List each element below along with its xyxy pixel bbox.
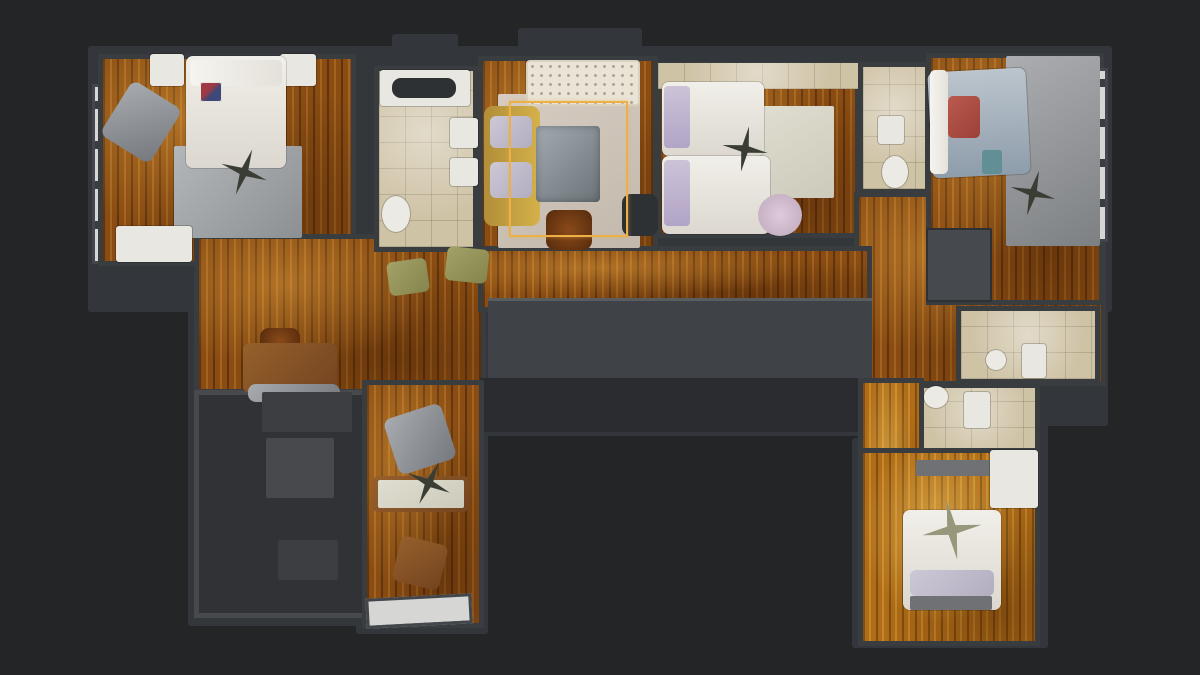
tufted-headboard (526, 60, 640, 106)
stool-teal (982, 150, 1002, 174)
room-core-shadow (480, 378, 872, 432)
sink-main-2 (450, 158, 478, 186)
patch-bright-darkroom (266, 438, 334, 498)
bathtub-basin (392, 78, 456, 98)
selected-room-highlight[interactable] (509, 101, 628, 237)
toilet-bath-upper (1022, 344, 1046, 378)
bench-bottom (910, 596, 992, 610)
wall-slab-vent-1 (392, 34, 458, 62)
office-ledge (365, 593, 472, 629)
sink-ensuite (878, 116, 904, 144)
pillows-bottom (910, 570, 994, 596)
pillow-twin-1 (664, 86, 690, 148)
pillow-twin-2 (664, 160, 690, 226)
cushions-red (948, 96, 980, 138)
toilet-ensuite (882, 156, 908, 188)
room-living-dining-left[interactable] (194, 234, 486, 394)
dining-chair-1 (386, 257, 430, 296)
sink-bath-upper (986, 350, 1006, 370)
toilet-main (382, 196, 410, 232)
room-stair-core[interactable] (488, 298, 872, 380)
sink-main-1 (450, 118, 478, 148)
nightstand-left (150, 54, 184, 86)
wardrobe-right (926, 228, 992, 302)
sink-bath-lower (924, 386, 948, 408)
shelf-bottom-bedroom (916, 460, 994, 476)
dining-chair-2 (444, 246, 489, 284)
office-desk-top (378, 480, 464, 508)
headboard-right (930, 70, 948, 174)
patch-dim-1 (262, 392, 352, 432)
wardrobe-bottom-bedroom (990, 450, 1038, 508)
dresser-master (116, 226, 192, 262)
patch-dim-2 (278, 540, 338, 580)
floorplan-canvas (0, 0, 1200, 675)
union-jack-pillow (200, 82, 222, 102)
chair-pink (758, 194, 802, 236)
toilet-bath-lower (964, 392, 990, 428)
